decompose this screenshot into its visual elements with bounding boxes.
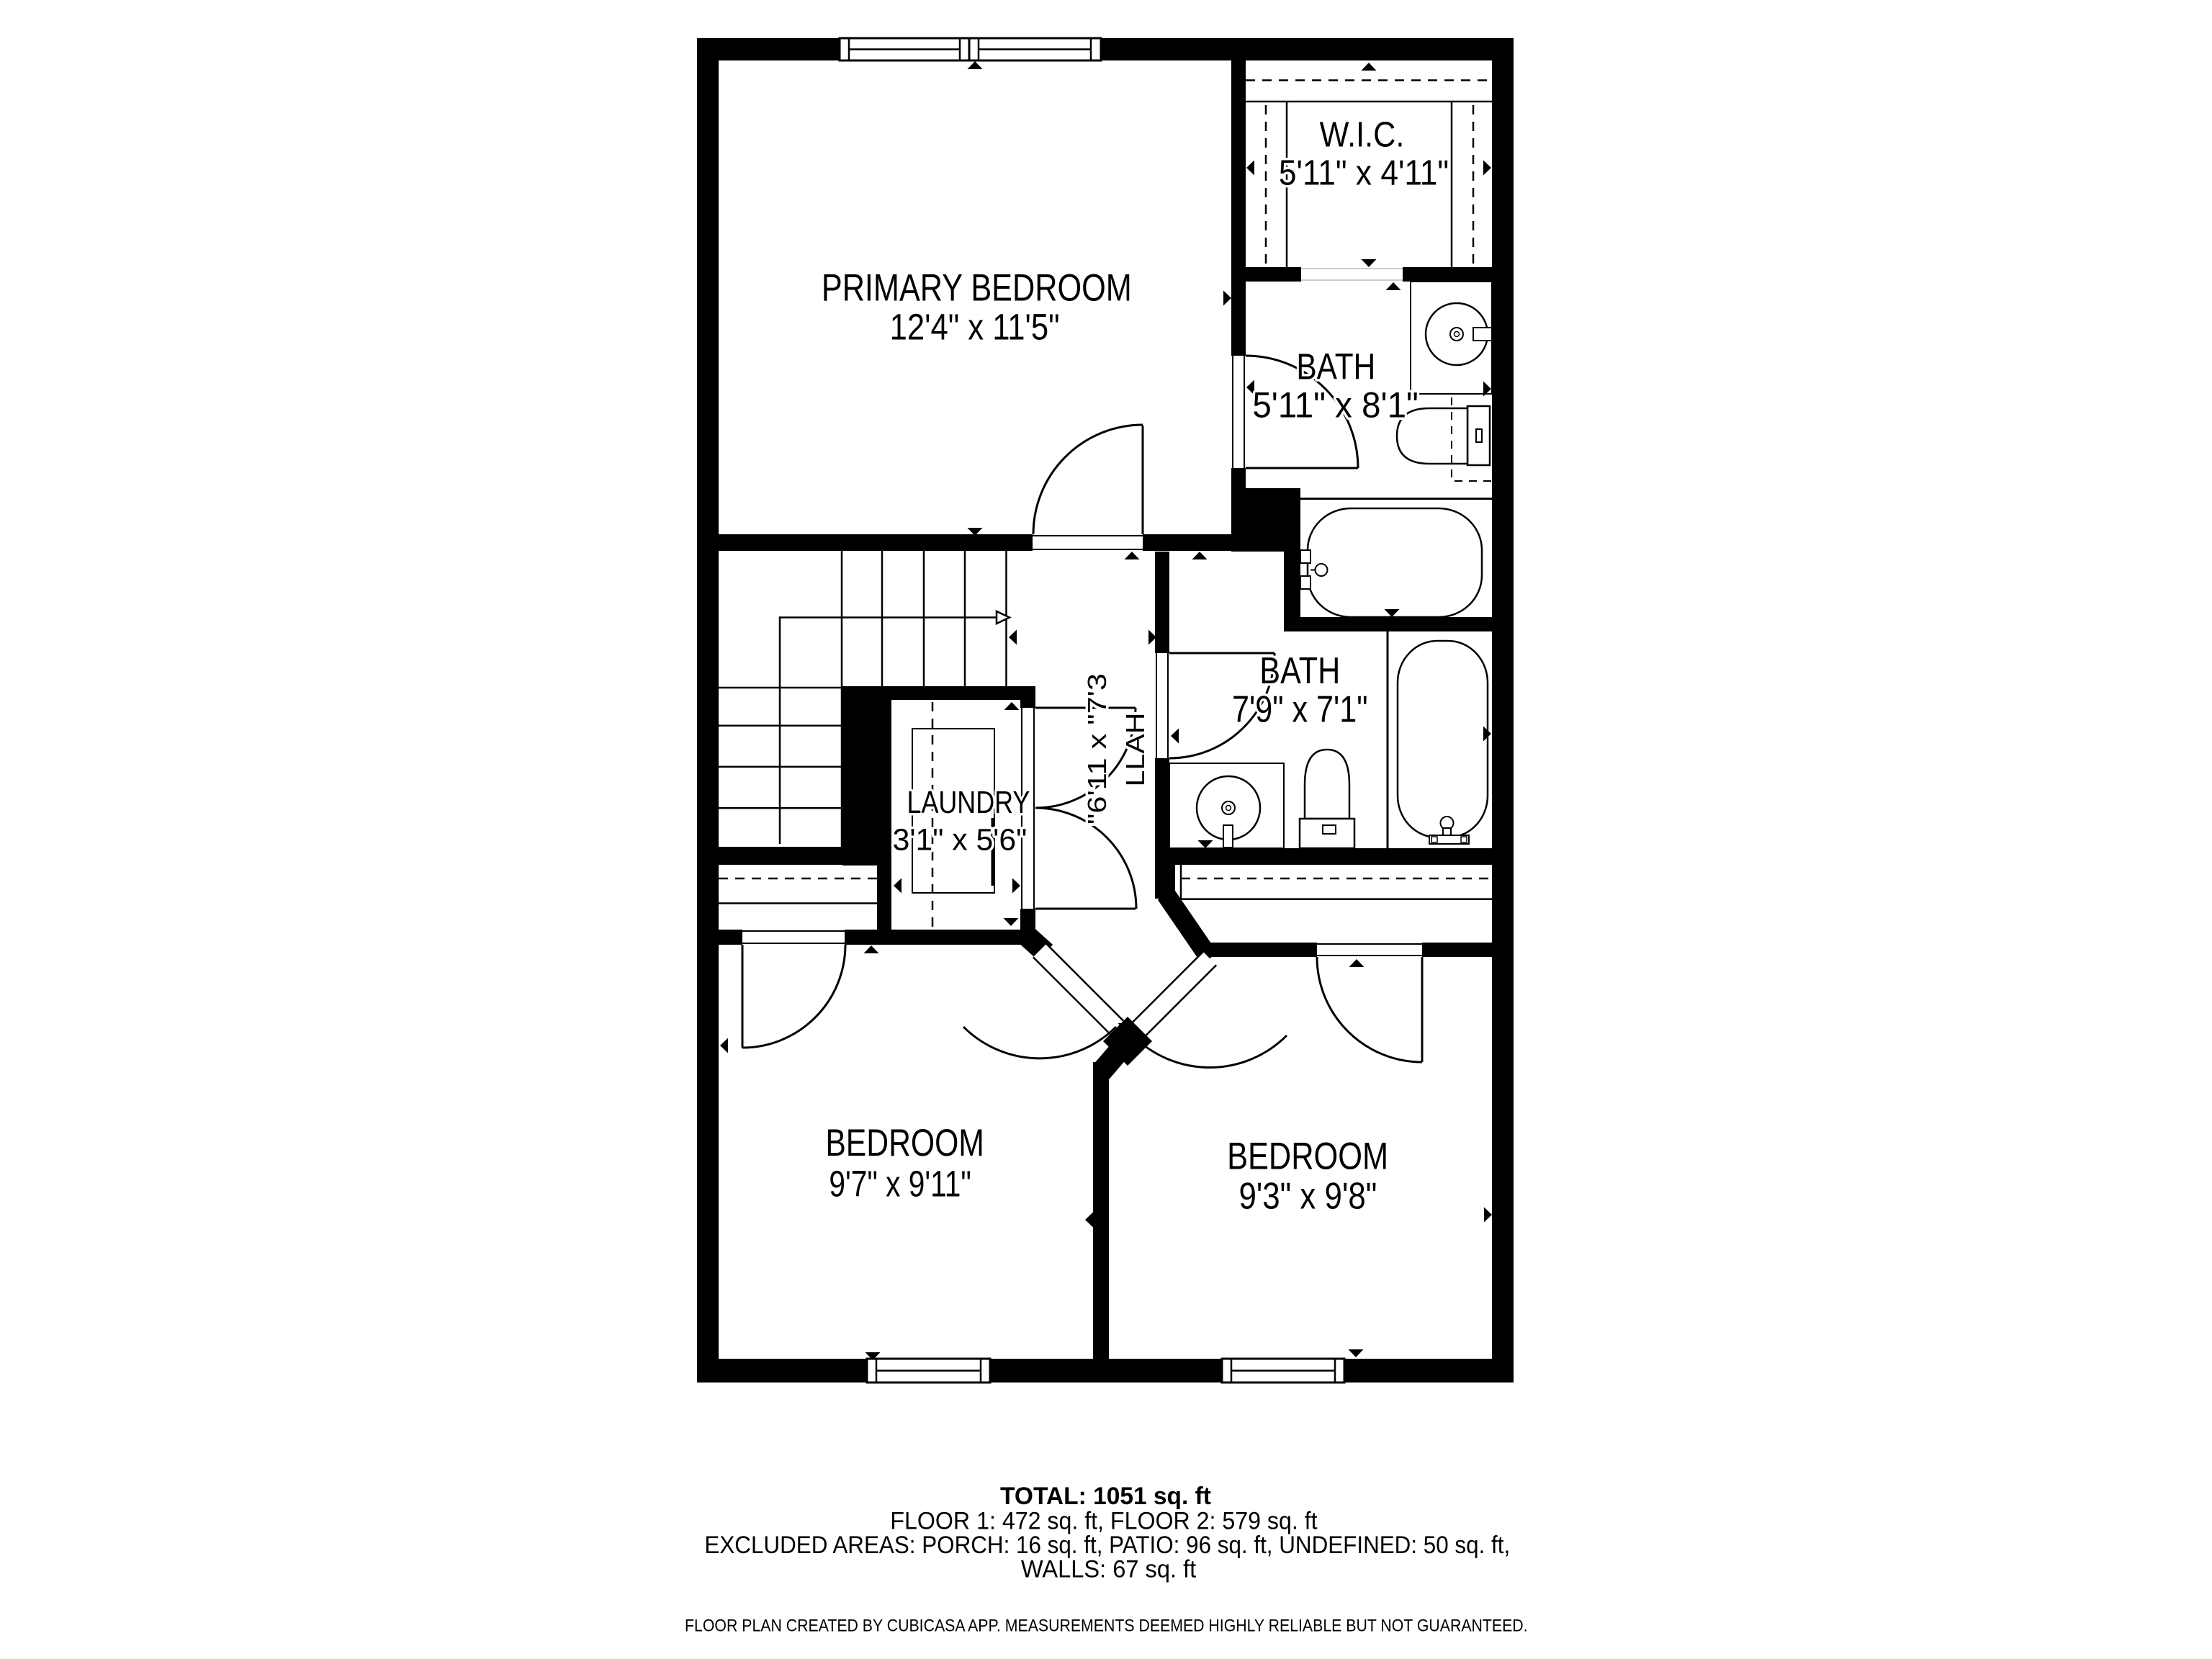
svg-text:LLAH: LLAH (1121, 713, 1150, 787)
svg-text:TOTAL: 1051 sq. ft: TOTAL: 1051 sq. ft (1000, 1483, 1211, 1510)
svg-text:9'3" x 9'8": 9'3" x 9'8" (1238, 1175, 1377, 1217)
svg-text:EXCLUDED AREAS: PORCH: 16 sq.: EXCLUDED AREAS: PORCH: 16 sq. ft, PATIO:… (704, 1531, 1510, 1558)
svg-text:WALLS: 67 sq. ft: WALLS: 67 sq. ft (1021, 1556, 1196, 1583)
svg-text:BATH: BATH (1296, 346, 1375, 387)
svg-text:BEDROOM: BEDROOM (1227, 1135, 1388, 1177)
svg-text:W.I.C.: W.I.C. (1320, 114, 1405, 154)
svg-text:BEDROOM: BEDROOM (825, 1122, 984, 1164)
svg-text:3'1" x 5'6": 3'1" x 5'6" (893, 822, 1028, 857)
svg-text:BATH: BATH (1259, 650, 1340, 692)
svg-text:"6'11 x "7'3: "6'11 x "7'3 (1083, 673, 1112, 824)
svg-text:9'7" x 9'11": 9'7" x 9'11" (829, 1163, 971, 1204)
svg-text:LAUNDRY: LAUNDRY (907, 784, 1030, 819)
svg-text:FLOOR PLAN CREATED BY CUBICASA: FLOOR PLAN CREATED BY CUBICASA APP. MEAS… (685, 1615, 1528, 1635)
svg-text:5'11" x 4'11": 5'11" x 4'11" (1279, 153, 1449, 192)
svg-text:12'4" x 11'5": 12'4" x 11'5" (890, 307, 1060, 349)
svg-text:7'9" x 7'1": 7'9" x 7'1" (1232, 689, 1368, 731)
svg-text:PRIMARY BEDROOM: PRIMARY BEDROOM (822, 266, 1132, 309)
svg-text:5'11" x 8'1": 5'11" x 8'1" (1252, 385, 1419, 425)
